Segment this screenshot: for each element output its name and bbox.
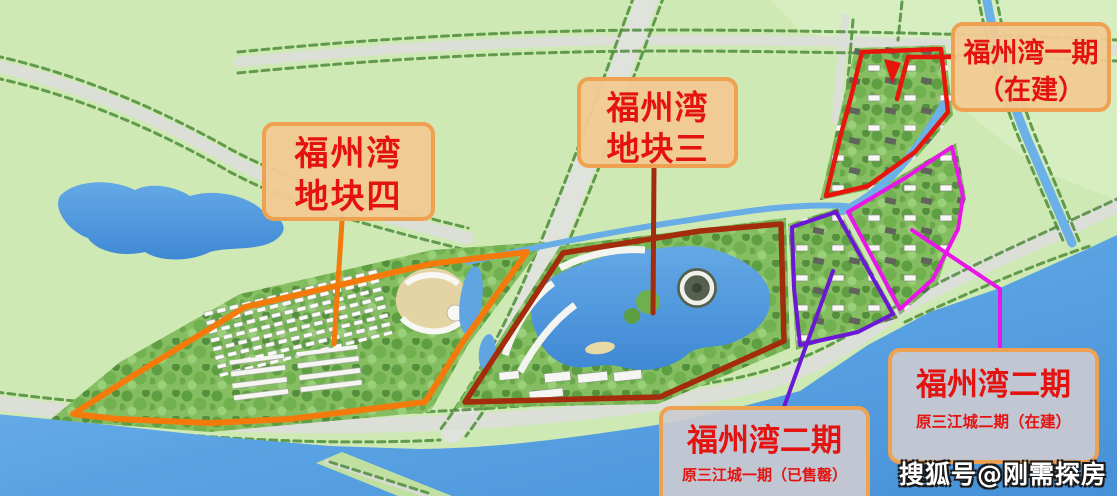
label-phase2-building-line2: 原三江城二期（在建） [892,415,1095,431]
label-phase1: 福州湾一期 （在建） [951,22,1111,112]
label-plot4-line1: 福州湾 [266,133,431,176]
label-phase2-building: 福州湾二期 原三江城二期（在建） [888,348,1099,464]
label-plot4-line2: 地块四 [266,176,431,219]
label-phase2-sold-line1: 福州湾二期 [663,426,866,457]
screenshot-root: 福州湾 地块四 福州湾 地块三 福州湾一期 （在建） 福州湾二期 原三江城一期（… [0,0,1117,496]
label-phase2-sold: 福州湾二期 原三江城一期（已售罄） [659,406,870,496]
watermark: 搜狐号@刚需探房 [899,455,1114,491]
label-phase2-building-line1: 福州湾二期 [892,370,1095,401]
plot3-leader-line [653,167,654,313]
label-phase2-sold-line2: 原三江城一期（已售罄） [663,468,866,483]
label-plot3: 福州湾 地块三 [577,77,738,168]
label-phase1-line1: 福州湾一期 [955,35,1107,72]
label-plot3-line2: 地块三 [581,128,734,169]
label-phase1-line2: （在建） [955,72,1107,109]
label-plot3-line1: 福州湾 [581,87,734,128]
label-plot4: 福州湾 地块四 [262,122,435,221]
